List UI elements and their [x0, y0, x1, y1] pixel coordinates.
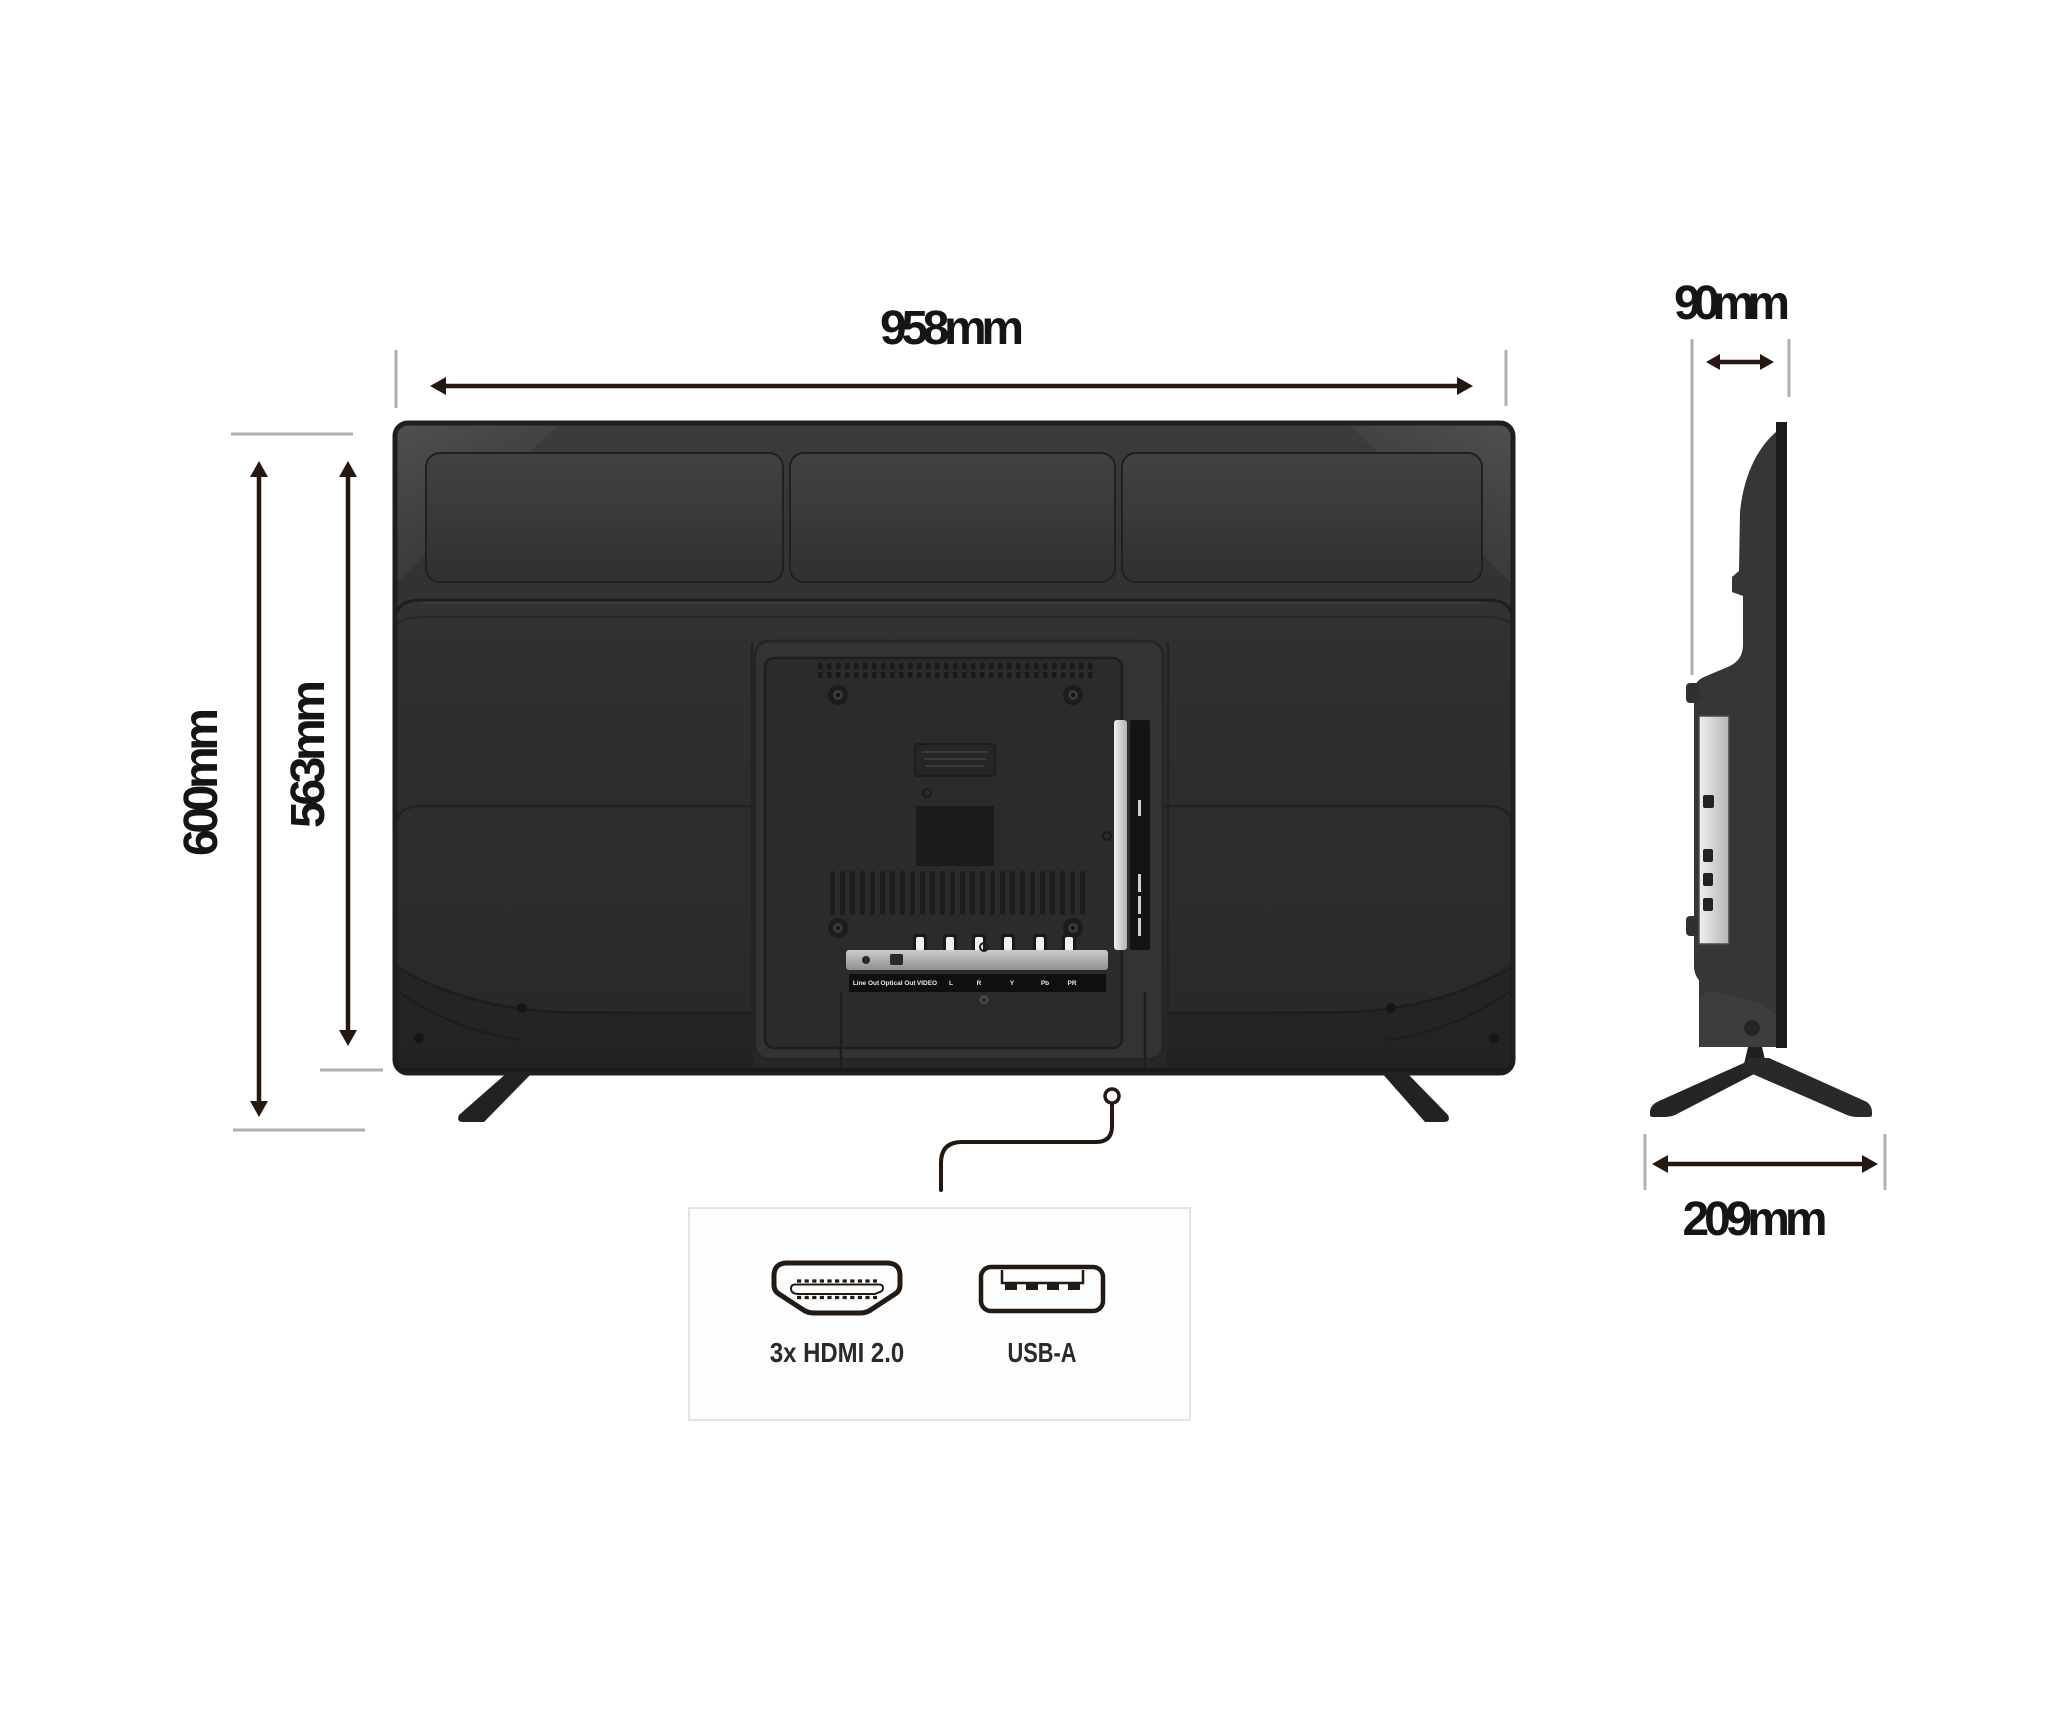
svg-text:R: R — [977, 980, 982, 987]
svg-text:USB-A: USB-A — [1007, 1337, 1076, 1368]
svg-text:Line Out: Line Out — [853, 980, 880, 987]
svg-text:Optical Out: Optical Out — [880, 980, 916, 987]
svg-text:209mm: 209mm — [1683, 1193, 1828, 1246]
svg-text:Pb: Pb — [1041, 980, 1049, 987]
svg-text:L: L — [949, 980, 953, 987]
svg-text:600mm: 600mm — [175, 708, 228, 856]
svg-text:Y: Y — [1010, 980, 1015, 987]
svg-text:90mm: 90mm — [1674, 277, 1790, 330]
svg-text:563mm: 563mm — [282, 680, 335, 828]
svg-text:3x HDMI 2.0: 3x HDMI 2.0 — [770, 1336, 904, 1368]
svg-text:VIDEO: VIDEO — [917, 980, 937, 987]
svg-text:PR: PR — [1067, 980, 1076, 987]
svg-text:958mm: 958mm — [880, 302, 1024, 355]
